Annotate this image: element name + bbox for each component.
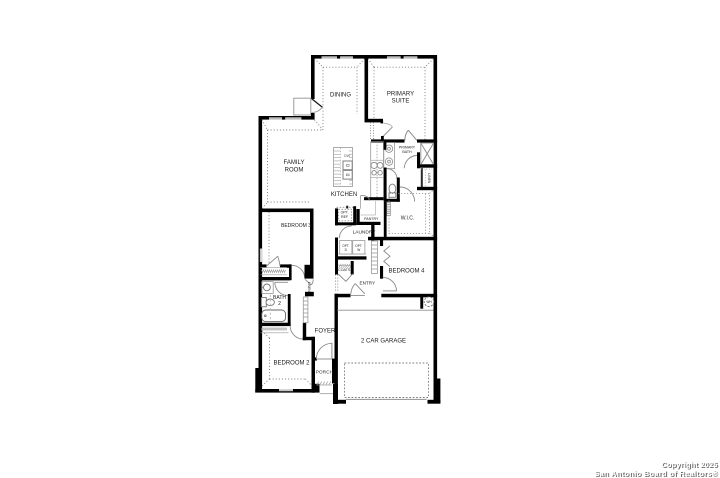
svg-text:2 CAR GARAGE: 2 CAR GARAGE xyxy=(361,339,406,345)
svg-text:COATS: COATS xyxy=(338,268,351,272)
svg-text:Copyright 2025: Copyright 2025 xyxy=(661,460,717,469)
svg-text:PRIMARY: PRIMARY xyxy=(387,91,414,97)
svg-text:DINING: DINING xyxy=(330,93,351,99)
svg-text:ENTRY: ENTRY xyxy=(360,280,376,285)
svg-text:BEDROOM 2: BEDROOM 2 xyxy=(273,361,310,367)
svg-text:DW: DW xyxy=(344,154,351,158)
svg-text:BEDROOM 4: BEDROOM 4 xyxy=(388,268,425,274)
svg-text:BATH: BATH xyxy=(273,295,286,301)
svg-text:SUITE: SUITE xyxy=(392,99,410,105)
svg-text:W.I.C.: W.I.C. xyxy=(401,215,415,221)
svg-text:W: W xyxy=(357,248,360,252)
svg-text:ROOM: ROOM xyxy=(285,167,304,173)
svg-text:KITCHEN: KITCHEN xyxy=(331,192,357,198)
svg-text:LAUNDRY: LAUNDRY xyxy=(353,229,377,235)
svg-text:BEDROOM 3: BEDROOM 3 xyxy=(281,223,311,229)
svg-text:San Antonio Board of Realtors®: San Antonio Board of Realtors® xyxy=(594,469,717,478)
svg-text:2: 2 xyxy=(278,301,281,307)
svg-text:PRIMARY: PRIMARY xyxy=(399,145,416,149)
svg-text:PANTRY: PANTRY xyxy=(364,217,379,221)
svg-text:PORCH: PORCH xyxy=(316,370,333,375)
svg-text:LINEN: LINEN xyxy=(307,282,311,293)
svg-text:FAMILY: FAMILY xyxy=(284,160,305,166)
svg-text:REF: REF xyxy=(341,215,349,219)
svg-text:LINEN: LINEN xyxy=(427,173,431,184)
svg-text:BATH: BATH xyxy=(402,150,412,154)
svg-text:WH: WH xyxy=(426,300,432,304)
svg-text:OPT.: OPT. xyxy=(341,211,349,215)
svg-text:FOYER: FOYER xyxy=(315,329,336,335)
